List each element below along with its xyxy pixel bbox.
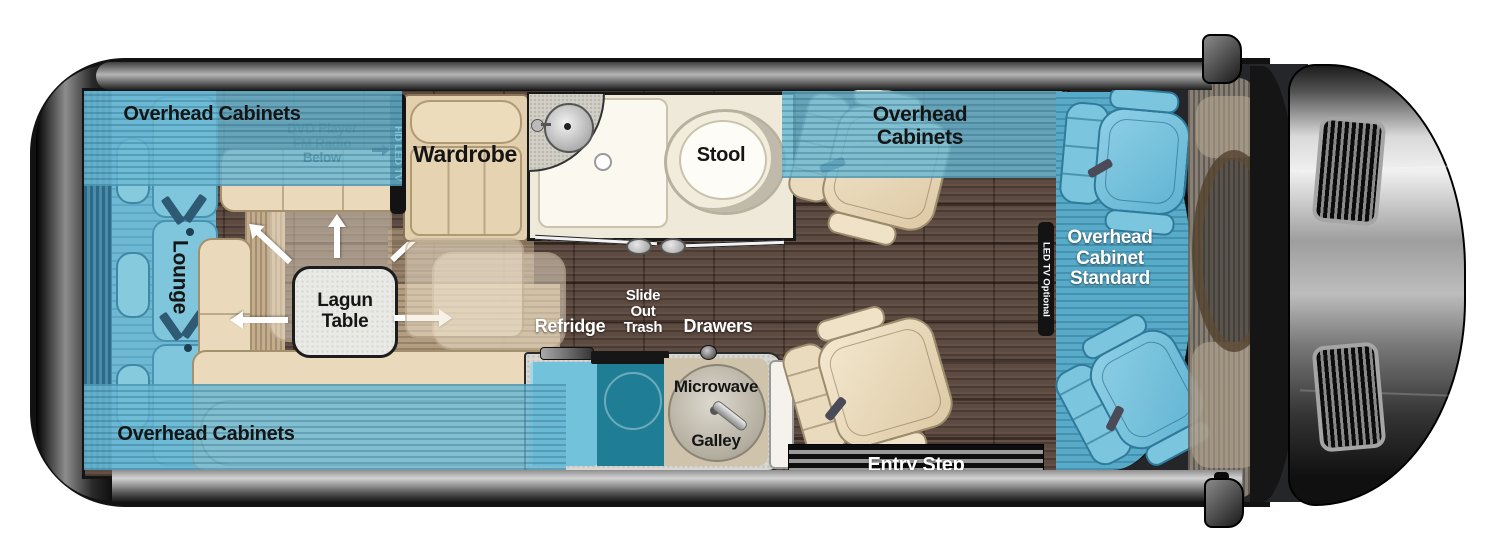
- fridge-handle: [540, 347, 594, 360]
- headrest-pillow: [116, 252, 150, 318]
- side-mirror-top: [1202, 34, 1242, 84]
- microwave-label: Microwave: [668, 378, 764, 396]
- galley-label: Galley: [672, 432, 760, 450]
- table-arrow-left: [230, 311, 288, 329]
- door-roller: [660, 238, 686, 255]
- side-skirt: [112, 470, 1242, 503]
- bathroom: Stool: [527, 92, 796, 241]
- floorplan-canvas: Lagun Table Wardrobe HD LED TV DVD Playe…: [0, 0, 1509, 555]
- lounge-label: Lounge: [168, 222, 191, 332]
- hood-vent-bottom: [1312, 341, 1387, 452]
- overhead-cabinets-label-rear-bottom: Overhead Cabinets: [106, 424, 306, 446]
- drawers-label: Drawers: [672, 317, 764, 336]
- wardrobe-label: Wardrobe: [405, 142, 525, 167]
- roof-rail: [96, 62, 1212, 90]
- seatbelt-buckle: [184, 344, 192, 352]
- overhead-cabinets-label-mid: Overhead Cabinets: [830, 104, 1010, 149]
- shower-drain: [594, 153, 612, 171]
- faucet-stem: [541, 123, 551, 126]
- led-tv-optional-label: LED TV Optional: [1041, 242, 1052, 317]
- table-arrow-up: [328, 214, 346, 258]
- stool-label: Stool: [676, 145, 766, 167]
- led-tv-optional-bar: LED TV Optional: [1038, 222, 1054, 336]
- lagun-table: Lagun Table: [292, 266, 398, 358]
- driver-seat: [1057, 95, 1195, 226]
- side-mirror-bottom: [1204, 478, 1244, 528]
- overhead-cabinet-standard-label: Overhead Cabinet Standard: [1052, 228, 1168, 290]
- cooktop-circle: [604, 372, 662, 430]
- lagun-table-label: Lagun Table: [317, 291, 373, 332]
- drawer-knob: [700, 345, 717, 360]
- hood-vent-top: [1312, 115, 1387, 226]
- wardrobe-top-cushion: [410, 100, 522, 144]
- counter-edge-bar: [591, 351, 669, 364]
- sink-drain-dot: [564, 123, 571, 130]
- door-roller: [626, 238, 652, 255]
- overhead-cabinets-label-rear-top: Overhead Cabinets: [112, 104, 312, 126]
- wardrobe-ghost-extension: [405, 238, 524, 338]
